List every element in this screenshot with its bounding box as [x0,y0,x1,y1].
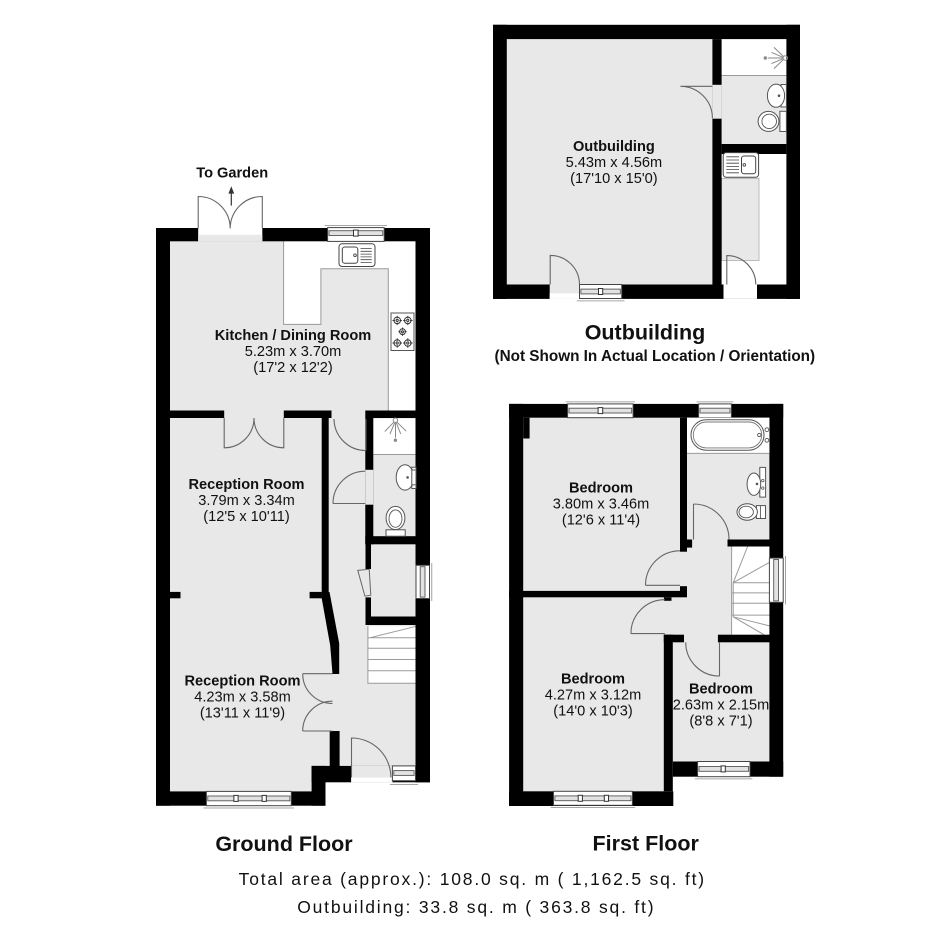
svg-text:Bedroom: Bedroom [689,681,753,697]
svg-text:Outbuilding: Outbuilding [573,139,655,155]
svg-text:Kitchen / Dining Room: Kitchen / Dining Room [215,328,371,344]
svg-text:Outbuilding: Outbuilding [585,321,706,345]
svg-text:(13'11 x 11'9): (13'11 x 11'9) [200,706,285,722]
svg-text:Reception Room: Reception Room [185,674,301,690]
svg-text:(17'2 x 12'2): (17'2 x 12'2) [253,360,332,376]
svg-text:Total area (approx.): 108.0 sq: Total area (approx.): 108.0 sq. m ( 1,16… [239,869,706,889]
svg-text:2.63m x 2.15m: 2.63m x 2.15m [673,697,770,713]
svg-text:To Garden: To Garden [196,166,268,182]
svg-text:Ground Floor: Ground Floor [215,832,353,856]
svg-text:Bedroom: Bedroom [569,480,633,496]
svg-text:3.80m x 3.46m: 3.80m x 3.46m [553,496,650,512]
svg-text:4.27m x 3.12m: 4.27m x 3.12m [545,688,642,704]
svg-text:(12'5 x 10'11): (12'5 x 10'11) [203,509,289,525]
svg-text:5.43m x 4.56m: 5.43m x 4.56m [566,155,663,171]
svg-text:Outbuilding: 33.8 sq. m ( 363.: Outbuilding: 33.8 sq. m ( 363.8 sq. ft) [297,897,655,917]
svg-text:(Not Shown In Actual Location: (Not Shown In Actual Location / Orientat… [494,348,815,365]
svg-text:4.23m x 3.58m: 4.23m x 3.58m [194,690,291,706]
svg-text:First Floor: First Floor [593,832,700,856]
svg-text:(8'8 x 7'1): (8'8 x 7'1) [689,713,752,729]
svg-text:(14'0 x 10'3): (14'0 x 10'3) [553,704,632,720]
svg-text:(12'6 x 11'4): (12'6 x 11'4) [562,512,640,528]
svg-text:5.23m x 3.70m: 5.23m x 3.70m [245,344,342,360]
svg-text:(17'10 x 15'0): (17'10 x 15'0) [570,171,658,187]
svg-text:Reception Room: Reception Room [189,477,305,493]
svg-text:3.79m x 3.34m: 3.79m x 3.34m [198,493,295,509]
svg-text:Bedroom: Bedroom [561,672,625,688]
